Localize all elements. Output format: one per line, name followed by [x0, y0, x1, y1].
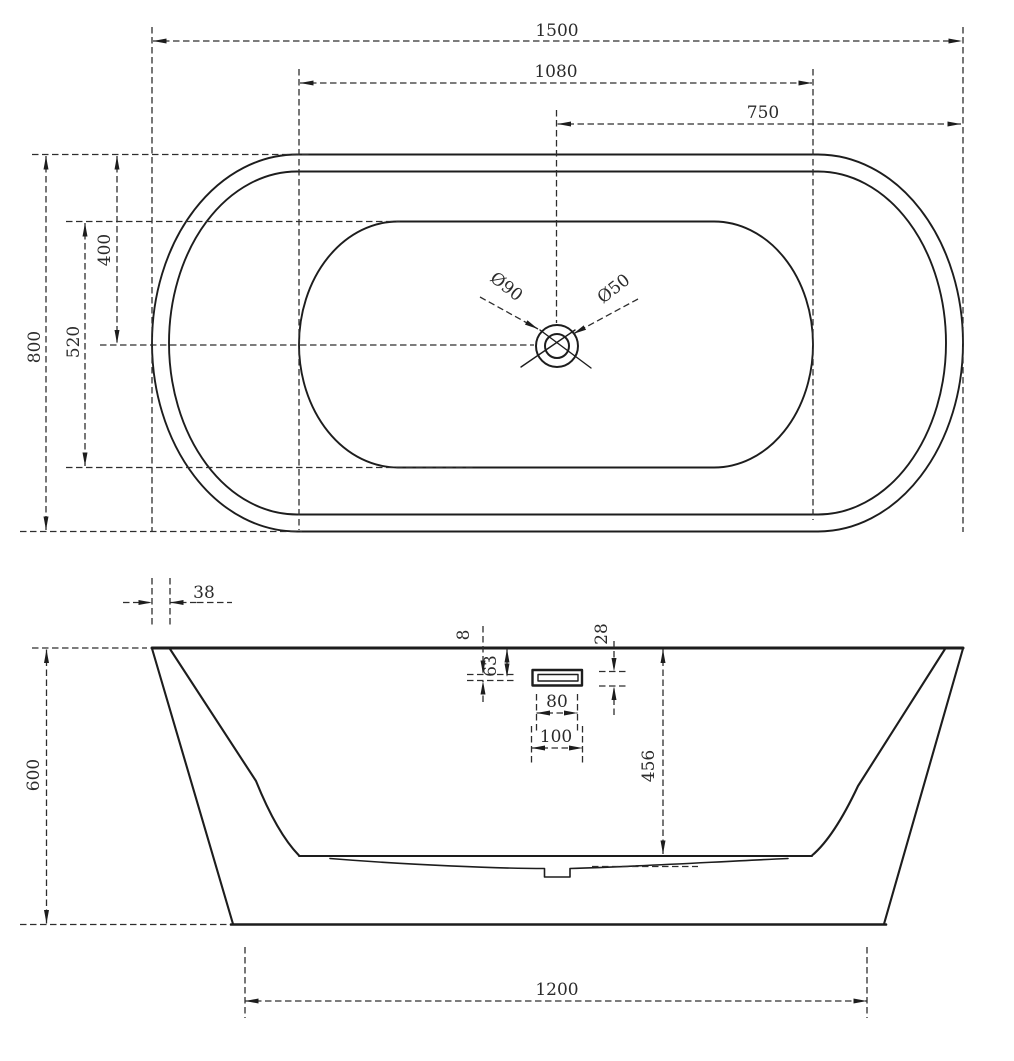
- dim-label-rim-to-slot: 63: [481, 655, 501, 677]
- floor-drain-slope: [330, 859, 788, 878]
- dim-label-slot-height: 8: [454, 630, 474, 641]
- dim-label-depth-to-floor: 456: [639, 750, 659, 782]
- dim-label-overflow-height: 28: [592, 623, 612, 645]
- dim-label-overflow-outer-width: 100: [540, 727, 572, 747]
- inner-wall-left: [170, 649, 299, 856]
- side-view: 38 600 8 63 28 456 80 100: [20, 578, 963, 1018]
- overflow-outer-rect: [533, 670, 583, 686]
- dim-label-drain-outer-diameter: Ø90: [486, 268, 526, 306]
- outer-wall-right: [884, 649, 963, 925]
- overflow-inner-rect: [538, 675, 578, 682]
- drain-inner-circle: [545, 334, 569, 358]
- bathtub-dimension-drawing: 1500 1080 750 800 520 400 Ø90 Ø50 38 600: [0, 0, 1014, 1061]
- dim-label-overall-width: 800: [25, 331, 45, 363]
- dim-label-drain-inner-diameter: Ø50: [594, 270, 634, 308]
- dim-label-basin-length: 1080: [534, 62, 577, 82]
- dim-label-base-length: 1200: [535, 980, 578, 1000]
- outer-wall-left: [152, 649, 233, 925]
- technical-drawing-page: 1500 1080 750 800 520 400 Ø90 Ø50 38 600: [0, 0, 1014, 1061]
- top-view: 1500 1080 750 800 520 400 Ø90 Ø50: [20, 21, 963, 532]
- dim-label-overall-length: 1500: [535, 21, 578, 41]
- dim-label-overall-height: 600: [24, 759, 44, 791]
- inner-wall-right: [812, 649, 945, 856]
- dim-label-basin-width: 520: [64, 326, 84, 358]
- dim-label-rim-wall-thickness: 38: [193, 583, 215, 603]
- dim-label-overflow-inner-width: 80: [546, 692, 568, 712]
- dim-label-center-to-right: 750: [747, 103, 779, 123]
- dim-label-top-to-center: 400: [95, 234, 115, 266]
